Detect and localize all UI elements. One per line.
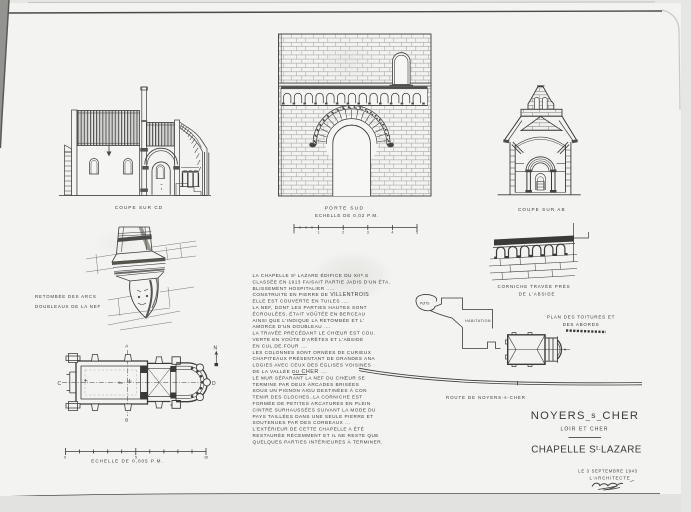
svg-text:10: 10	[204, 456, 208, 460]
svg-text:DES ABORDS: DES ABORDS	[563, 322, 600, 327]
svg-text:LES COLONNES SONT ORNÉES DE CU: LES COLONNES SONT ORNÉES DE CURIEUX	[253, 349, 372, 355]
svg-text:TENIR DES CLOCHES..LA CORNICH: TENIR DES CLOCHES..LA CORNICHE EST	[253, 395, 363, 400]
svg-text:HABITATION: HABITATION	[465, 319, 491, 323]
svg-text:COUPE SUR AB: COUPE SUR AB	[518, 207, 566, 212]
svg-text:CLASSÉE EN 1913 FAISAIT PARTIE: CLASSÉE EN 1913 FAISAIT PARTIE JADIS D'U…	[253, 278, 391, 284]
svg-text:CINTRE SURHAUSSÉES SUIVANT LA: CINTRE SURHAUSSÉES SUIVANT LA MODE DU	[253, 406, 376, 412]
svg-text:L'EXTÉRIEUR DE CETTE CHAPELLE: L'EXTÉRIEUR DE CETTE CHAPELLE A ÉTÉ	[253, 426, 365, 432]
svg-text:PLAN DES TOITURES ET: PLAN DES TOITURES ET	[547, 315, 615, 320]
svg-text:ÉCROULÉES, ÉTAIT VOÛTÉE EN BER: ÉCROULÉES, ÉTAIT VOÛTÉE EN BERCEAU	[253, 310, 366, 316]
svg-text:PORTE SUD: PORTE SUD	[325, 206, 365, 212]
svg-text:LA NEF, DONT LES PARTIES HAUTE: LA NEF, DONT LES PARTIES HAUTES SONT	[253, 305, 367, 310]
svg-text:DOUBLEAUX DE LA NEF: DOUBLEAUX DE LA NEF	[35, 304, 101, 309]
svg-text:LA TRAVÉE PRÉCÉDANT LE CHŒUR E: LA TRAVÉE PRÉCÉDANT LE CHŒUR EST COU.	[253, 330, 376, 336]
svg-text:QUELQUES PARTIES INTÉRIEURES À: QUELQUES PARTIES INTÉRIEURES À TERMINER.	[253, 438, 383, 444]
svg-text:ELLE EST COUVERTE EN TUILES .…: ELLE EST COUVERTE EN TUILES .…	[253, 299, 349, 304]
svg-text:SOUTENUES PAR DES CORBEAUX ...: SOUTENUES PAR DES CORBEAUX ...	[253, 420, 351, 425]
svg-text:C: C	[58, 381, 62, 387]
svg-text:1: 1	[318, 231, 320, 235]
svg-text:PAYS TAILLÉES DANS UNE SEULE P: PAYS TAILLÉES DANS UNE SEULE PIERRE ET	[253, 413, 374, 419]
svg-text:RESTAURÉE RÉCEMMENT ET IL NE R: RESTAURÉE RÉCEMMENT ET IL NE RESTE QUE	[253, 432, 379, 438]
svg-text:4: 4	[391, 231, 393, 235]
svg-text:LE 3 SEPTEMBRE 1943: LE 3 SEPTEMBRE 1943	[578, 468, 637, 473]
svg-text:2: 2	[342, 231, 344, 235]
svg-text:SOUS UN PIGNON AIGU DESTINÉES: SOUS UN PIGNON AIGU DESTINÉES À CON	[253, 387, 367, 393]
svg-text:N: N	[214, 346, 218, 352]
svg-text:RETOMBÉE DES ARCS: RETOMBÉE DES ARCS	[35, 294, 97, 299]
svg-text:ECHELLE DE 0,005 P.M.: ECHELLE DE 0,005 P.M.	[91, 459, 164, 464]
svg-text:DE LA VALLÉE DU CHER .…: DE LA VALLÉE DU CHER .…	[253, 368, 328, 375]
svg-text:CORNICHE TRAVÉE PRÈS: CORNICHE TRAVÉE PRÈS	[498, 284, 571, 289]
svg-text:LE MUR SÉPARANT LA NEF DU CHŒU: LE MUR SÉPARANT LA NEF DU CHŒUR SE	[253, 374, 366, 380]
svg-text:FORMÉE DE PETITES ARCATURES EN: FORMÉE DE PETITES ARCATURES EN PLEIN	[253, 400, 371, 406]
svg-text:LOGIES AVEC CEUX DES ÉGLISES V: LOGIES AVEC CEUX DES ÉGLISES VOISINES	[253, 362, 372, 368]
svg-text:PUITS: PUITS	[420, 302, 429, 306]
svg-text:EN CUL.DE.FOUR .…: EN CUL.DE.FOUR .…	[253, 343, 308, 348]
svg-text:TERMINE PAR DEUX ARCADES BRISÉ: TERMINE PAR DEUX ARCADES BRISÉES	[253, 381, 360, 387]
svg-text:VERTE EN VOÛTE D'ARÊTES ET L'A: VERTE EN VOÛTE D'ARÊTES ET L'ABSIDE	[253, 335, 364, 342]
svg-text:3: 3	[367, 231, 369, 235]
svg-text:NOYERS_s_CHER: NOYERS_s_CHER	[531, 410, 639, 422]
svg-text:D: D	[212, 381, 216, 387]
svg-text:0: 0	[64, 456, 66, 460]
svg-text:5: 5	[416, 231, 418, 235]
svg-text:L'ARCHITECTE: L'ARCHITECTE	[590, 475, 631, 480]
svg-text:0: 0	[293, 231, 295, 235]
svg-text:B: B	[125, 418, 128, 423]
svg-text:AMORCE D'UN DOUBLEAU .…: AMORCE D'UN DOUBLEAU .…	[253, 324, 331, 329]
svg-text:AINSI QUE L'INDIQUE LA RETOMBÉ: AINSI QUE L'INDIQUE LA RETOMBÉE ET L'	[253, 317, 365, 323]
svg-text:DE L'ABSIDE: DE L'ABSIDE	[519, 292, 556, 297]
svg-text:ROUTE DE NOYERS-s-CHER: ROUTE DE NOYERS-s-CHER	[446, 395, 526, 400]
svg-text:ECHELLE DE 0,02 P.M.: ECHELLE DE 0,02 P.M.	[315, 213, 379, 218]
svg-text:LOIR ET CHER: LOIR ET CHER	[560, 427, 608, 433]
svg-text:COUPE SUR CD: COUPE SUR CD	[115, 205, 163, 210]
svg-text:LA CHAPELLE St LAZARE ÉDIFICE: LA CHAPELLE St LAZARE ÉDIFICE DU XIIe.S	[253, 272, 369, 278]
svg-text:5m: 5m	[118, 381, 123, 385]
svg-text:A: A	[125, 344, 128, 349]
svg-text:CHAPITEAUX PRÉSENTANT DE GRAND: CHAPITEAUX PRÉSENTANT DE GRANDES ANA	[253, 355, 376, 361]
svg-text:BLISSEMENT HOSPITALIER ..…: BLISSEMENT HOSPITALIER ..…	[253, 286, 336, 291]
svg-text:CHAPELLE St-LAZARE: CHAPELLE St-LAZARE	[531, 444, 642, 455]
